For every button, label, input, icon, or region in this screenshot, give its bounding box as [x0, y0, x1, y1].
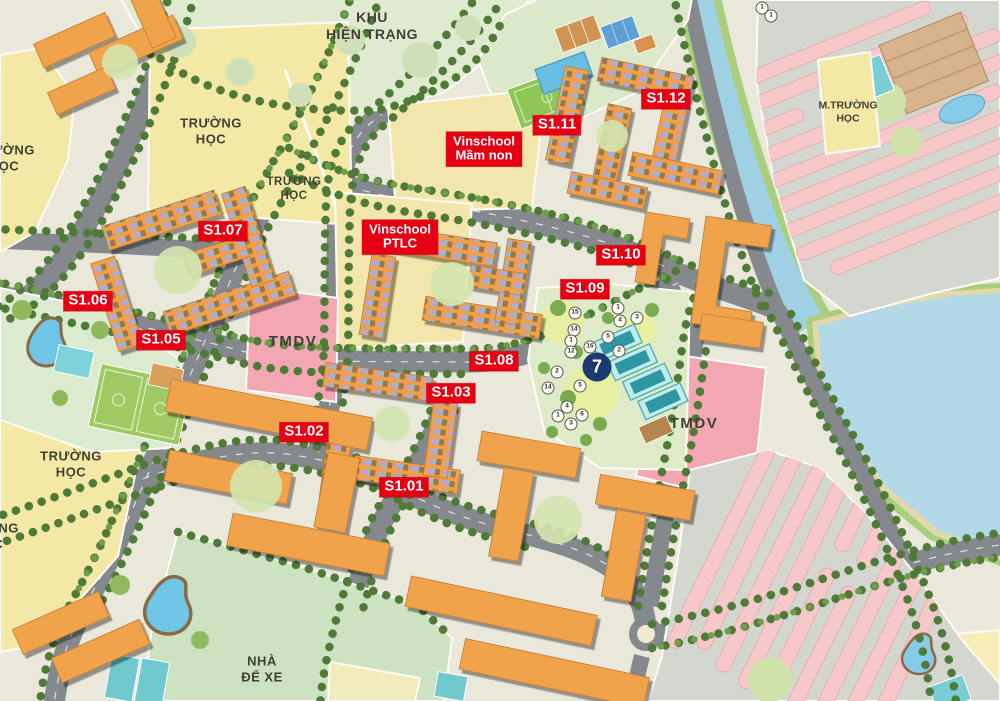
- badge-s1-03[interactable]: S1.03: [426, 383, 475, 403]
- park-marker: 4: [614, 315, 627, 328]
- badge-s1-12[interactable]: S1.12: [641, 89, 690, 109]
- park-marker: 6: [576, 409, 589, 422]
- masterplan-map: KHU HIỆN TRẠNG TRƯỜNG HỌC TRƯỜNG HỌC TRƯ…: [0, 0, 1000, 701]
- park-marker: 14: [542, 382, 555, 395]
- label-tmdv-right: TMDV: [670, 415, 719, 433]
- label-truong-hoc-top: TRƯỜNG HỌC: [180, 115, 242, 146]
- badge-s1-08[interactable]: S1.08: [469, 351, 518, 371]
- label-truong-hoc-bottomleft: TRƯỜNG HỌC: [40, 448, 102, 479]
- badge-s1-01[interactable]: S1.01: [379, 477, 428, 497]
- park-marker: 1: [552, 410, 565, 423]
- park-marker: 1: [612, 302, 625, 315]
- park-marker: 1: [765, 10, 778, 23]
- label-truong-hoc-edge-clipped: TRƯỜNG HỌC: [0, 520, 19, 551]
- label-khu-hien-trang: KHU HIỆN TRẠNG: [326, 9, 418, 43]
- park-marker: 3: [631, 312, 644, 325]
- park-marker: 16: [584, 341, 597, 354]
- badge-s1-06[interactable]: S1.06: [63, 291, 112, 311]
- park-marker: 15: [569, 307, 582, 320]
- label-truong-hoc-left-clipped: TRƯỜNG HỌC: [0, 142, 35, 173]
- label-m-truong-hoc: M.TRƯỜNG HỌC: [818, 99, 877, 124]
- park-marker: 12: [565, 346, 578, 359]
- label-tmdv-left: TMDV: [269, 333, 318, 351]
- park-marker: 3: [565, 418, 578, 431]
- badge-vinschool-mam-non[interactable]: Vinschool Mầm non: [446, 132, 522, 167]
- park-marker: 2: [613, 345, 626, 358]
- badge-s1-11[interactable]: S1.11: [533, 115, 581, 135]
- badge-s1-07[interactable]: S1.07: [198, 221, 247, 241]
- badge-vinschool-ptlc[interactable]: Vinschool PTLC: [362, 220, 438, 255]
- park-marker: 2: [551, 366, 564, 379]
- badge-s1-05[interactable]: S1.05: [136, 330, 185, 350]
- label-nha-de-xe: NHÀ ĐỂ XE: [241, 653, 283, 684]
- poi-marker-7[interactable]: 7: [583, 353, 612, 382]
- badge-s1-02[interactable]: S1.02: [279, 422, 328, 442]
- badge-s1-10[interactable]: S1.10: [596, 245, 645, 265]
- badge-s1-09[interactable]: S1.09: [560, 279, 609, 299]
- label-truong-hoc-top2: TRƯỜNG HỌC: [267, 176, 322, 204]
- park-marker: 5: [602, 331, 615, 344]
- park-marker: 5: [574, 380, 587, 393]
